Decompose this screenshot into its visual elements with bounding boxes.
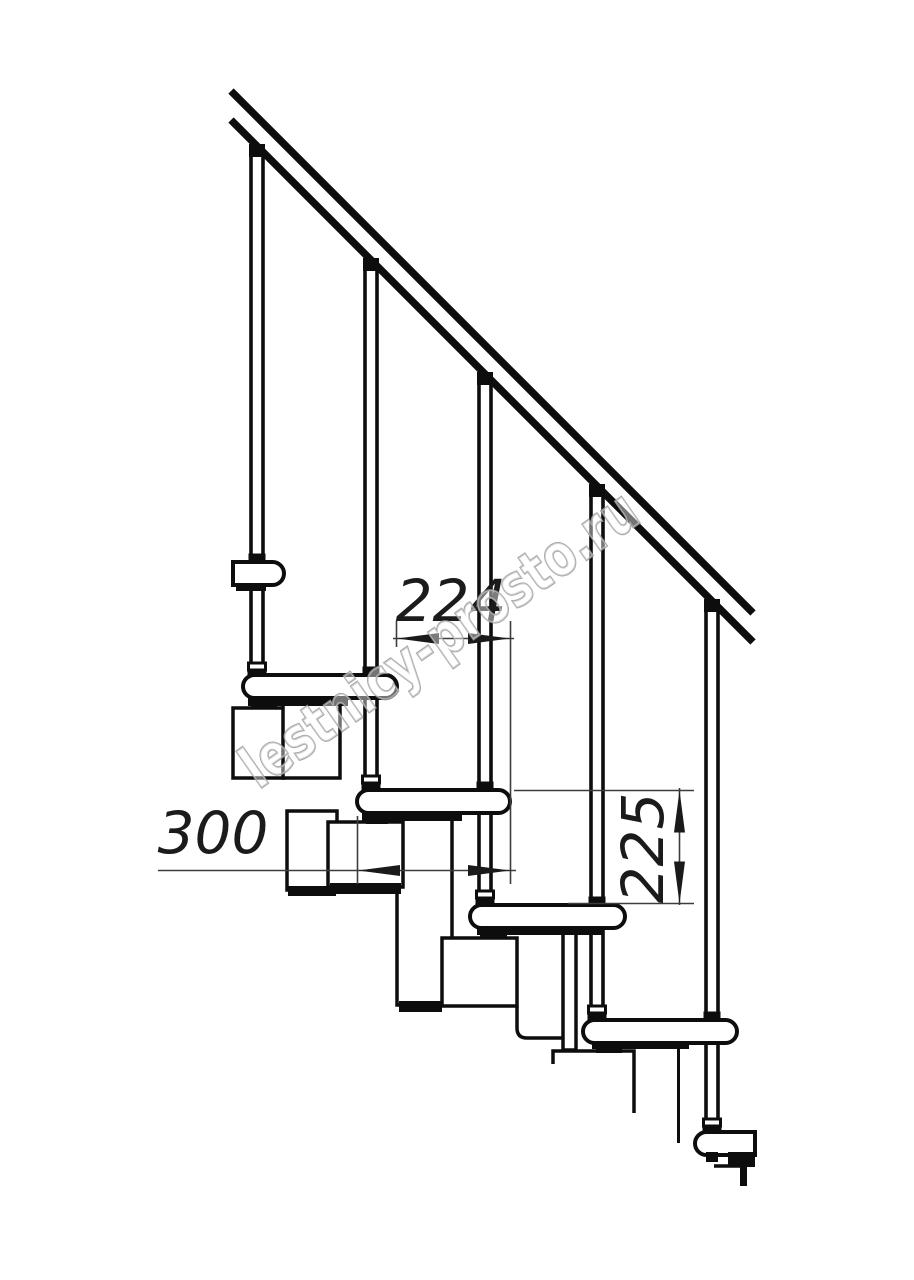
support-module-base xyxy=(399,1001,442,1012)
tread-f xyxy=(695,1132,755,1155)
baluster-rail-connector xyxy=(249,144,265,157)
tread-underside-mark xyxy=(596,1043,622,1053)
baluster-foot-pad xyxy=(476,897,495,906)
tread-a xyxy=(233,562,284,585)
baluster-rail-connector xyxy=(704,599,720,612)
tread-underside-mark xyxy=(706,1152,718,1162)
support-module-base xyxy=(330,883,401,894)
baluster-tread-clamp xyxy=(249,554,266,563)
dimension-arrow xyxy=(468,865,510,876)
staircase-drawing-page: 224 300 225 lestnicy-prosto.ru xyxy=(0,0,914,1280)
tread-underside-mark xyxy=(366,814,388,824)
support-module-box xyxy=(442,938,517,1006)
tread-c xyxy=(357,790,510,813)
tread-d xyxy=(470,905,625,928)
support-module-box xyxy=(328,822,403,887)
tread-e xyxy=(583,1020,737,1043)
support-module-base xyxy=(740,1166,747,1186)
tread-underside-mark xyxy=(236,584,266,591)
baluster-rail-connector xyxy=(363,258,379,271)
support-module-base xyxy=(288,886,336,896)
baluster-rail-connector xyxy=(477,372,493,385)
baluster-tread-clamp xyxy=(477,782,494,791)
baluster-foot-pad xyxy=(703,1125,722,1134)
dimension-label-300: 300 xyxy=(158,799,269,867)
baluster-tread-clamp xyxy=(704,1012,721,1021)
baluster-foot-pad xyxy=(362,782,381,791)
tread-underside-mark xyxy=(728,1152,755,1167)
watermark-text: lestnicy-prosto.ru xyxy=(228,476,652,801)
support-module-box xyxy=(563,928,576,1050)
support-module-edge xyxy=(517,1006,563,1038)
tread-underside-mark xyxy=(480,929,507,939)
dimension-label-225: 225 xyxy=(609,793,677,904)
tread-underside-mark xyxy=(251,699,277,709)
staircase-technical-drawing: 224 300 225 lestnicy-prosto.ru xyxy=(0,0,914,1280)
baluster-foot-pad xyxy=(588,1012,607,1021)
baluster-foot-pad xyxy=(248,669,267,678)
support-module-edge xyxy=(553,1051,634,1113)
